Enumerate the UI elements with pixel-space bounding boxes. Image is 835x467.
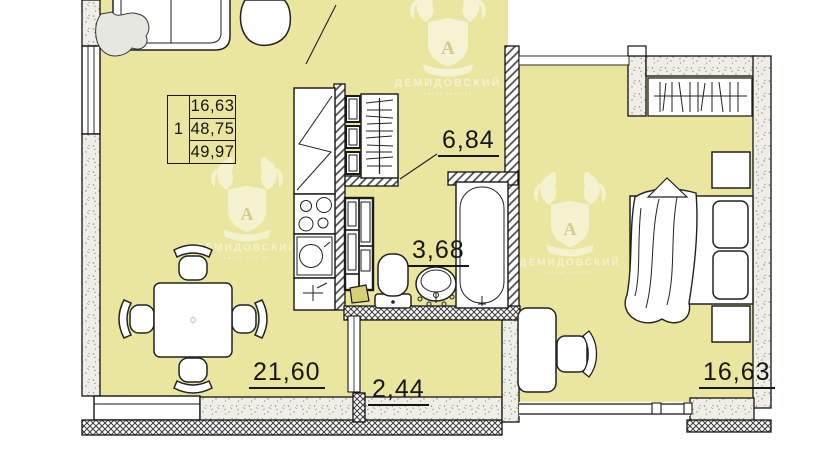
stamp-total-area: 49,97 [190,141,235,163]
wall-tr-vert [628,56,646,116]
window-bottom-left [94,396,200,420]
watermark-brand: ДЕМИДОВСКИЙ [519,256,621,268]
area-label-living-kitchen: 21,60 [249,360,325,389]
wall-br-strip [687,420,771,432]
watermark-tagline: жилой квартал [223,255,270,260]
nightstand [712,152,750,188]
watermark-monogram: А [563,219,576,239]
desk-chair [557,336,587,372]
dining-chair [232,300,267,338]
kitchen-cabinet [294,278,335,310]
nightstand [712,306,750,342]
dining-table [154,283,232,357]
stamp-room-count: 1 [168,96,190,163]
pillow [713,201,748,248]
area-label-bedroom: 16,63 [699,360,775,389]
wall-right-column [753,56,771,408]
wall-tr-horiz [646,56,754,76]
blanket [625,189,697,323]
wall-outer-strip [82,420,502,435]
wall-balcony-left [353,393,365,422]
kitchen-block [294,88,335,310]
door-threshold [519,56,629,65]
area-label-bathroom: 3,68 [408,238,469,267]
watermark-monogram: А [441,38,455,59]
stamp-area: 48,75 [190,119,235,142]
doormat [350,285,369,303]
apartment-stamp: 1 16,63 48,75 49,97 [167,95,236,164]
floor-plan: А ДЕМИДОВСКИЙ жилой квартал А ДЕМИДОВСКИ… [0,0,835,467]
wall-bedroom-left [502,314,519,422]
dining-chair [174,358,212,393]
wall-parapet [200,397,502,422]
armchair [240,0,290,45]
sofa [96,0,230,56]
watermark-tagline: жилой квартал [546,270,593,275]
kitchen-sink [294,234,335,278]
coat-rack [361,94,398,178]
pillow [713,251,748,299]
wardrobe-rack [648,78,752,116]
toilet [375,254,411,308]
area-label-hallway: 6,84 [438,128,499,157]
window-left [82,46,100,134]
wall-br-pier [690,398,754,422]
wall-left-bottom [82,134,100,396]
desk [518,308,556,392]
watermark-tagline: жилой квартал [423,90,473,96]
stamp-living-area: 16,63 [190,96,235,119]
area-label-balcony: 2,44 [368,377,429,406]
kitchen-tall-cabinet [294,88,335,194]
watermark-brand: ДЕМИДОВСКИЙ [395,76,502,89]
watermark-monogram: А [240,204,253,224]
dining-chair [174,245,212,280]
dining-chair [119,300,154,338]
